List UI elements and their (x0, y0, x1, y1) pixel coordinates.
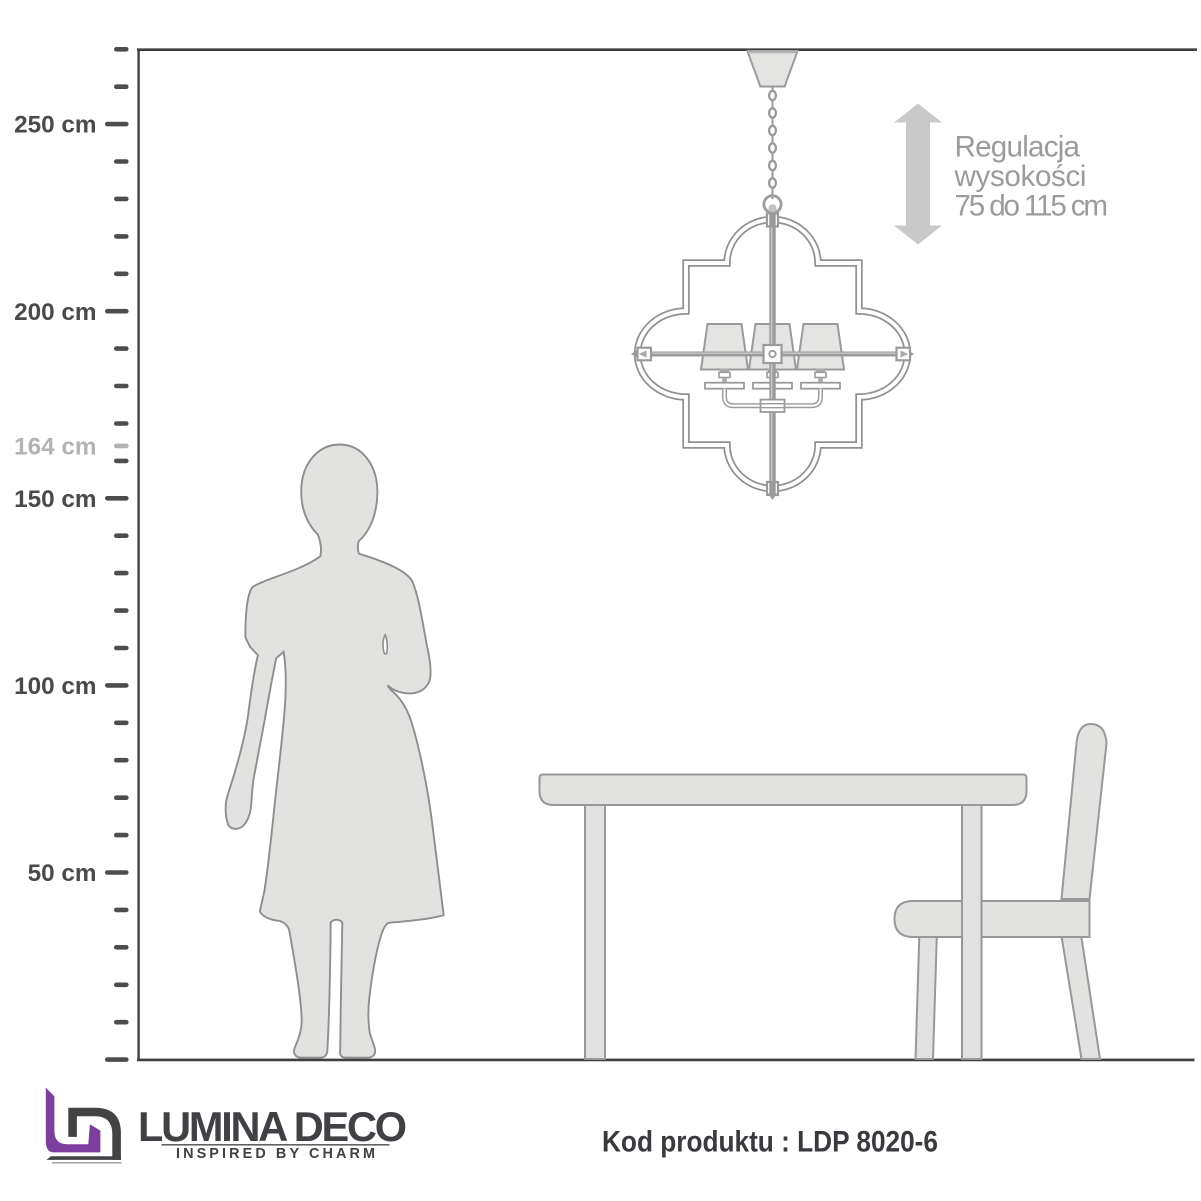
svg-text:Kod produktu : LDP 8020-6: Kod produktu : LDP 8020-6 (602, 1126, 938, 1159)
svg-text:150 cm: 150 cm (14, 486, 96, 513)
svg-text:250 cm: 250 cm (14, 112, 96, 139)
svg-text:200 cm: 200 cm (14, 299, 96, 326)
svg-text:wysokości: wysokości (954, 160, 1087, 193)
svg-text:75 do 115 cm: 75 do 115 cm (955, 189, 1109, 222)
svg-text:100 cm: 100 cm (14, 673, 96, 700)
svg-text:50 cm: 50 cm (28, 860, 97, 887)
svg-text:LUMINA DECO: LUMINA DECO (138, 1103, 407, 1150)
svg-text:Regulacja: Regulacja (955, 130, 1081, 163)
svg-text:INSPIRED BY CHARM: INSPIRED BY CHARM (176, 1146, 375, 1162)
svg-text:164 cm: 164 cm (14, 434, 96, 461)
